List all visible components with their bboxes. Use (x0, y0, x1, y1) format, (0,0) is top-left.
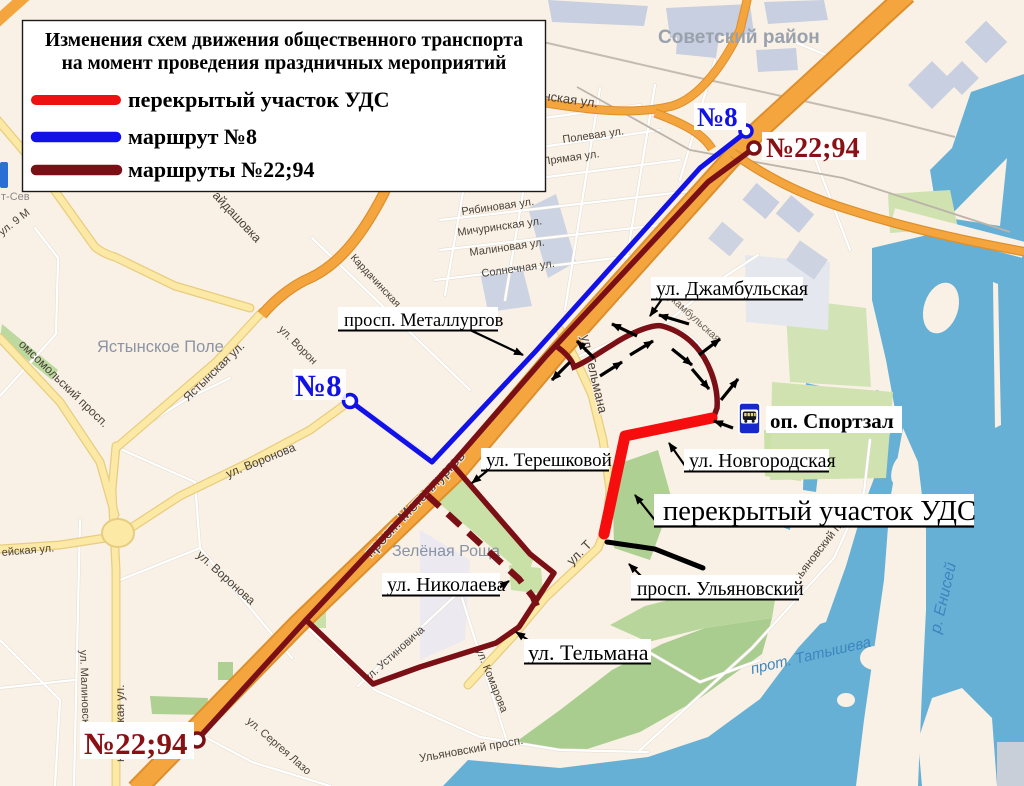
svg-text:перекрытый участок УДС: перекрытый участок УДС (663, 496, 976, 527)
svg-text:т-Сев: т-Сев (1, 191, 30, 203)
svg-text:Советский район: Советский район (658, 27, 820, 48)
svg-text:просп. Металлургов: просп. Металлургов (344, 311, 504, 331)
svg-text:ул. Джамбульская: ул. Джамбульская (656, 278, 808, 300)
svg-text:ул. Николаева: ул. Николаева (387, 574, 506, 596)
svg-text:№8: №8 (295, 368, 342, 403)
svg-text:ул. Новгородская: ул. Новгородская (689, 450, 836, 472)
svg-text:просп. Ульяновский: просп. Ульяновский (637, 579, 804, 600)
svg-text:Изменения схем движения общест: Изменения схем движения общественного тр… (45, 30, 523, 51)
svg-text:перекрытый участок УДС: перекрытый участок УДС (128, 87, 390, 112)
svg-text:№22;94: №22;94 (84, 726, 187, 761)
svg-text:маршруты №22;94: маршруты №22;94 (128, 157, 315, 182)
svg-text:ул. Тельмана: ул. Тельмана (528, 640, 649, 665)
svg-text:оп. Спортзал: оп. Спортзал (770, 409, 894, 433)
svg-text:маршрут №8: маршрут №8 (128, 124, 257, 149)
svg-text:ул. Терешковой: ул. Терешковой (486, 450, 612, 471)
svg-text:Ястынское Поле: Ястынское Поле (97, 338, 224, 356)
svg-text:№8: №8 (697, 102, 738, 132)
svg-text:№22;94: №22;94 (766, 133, 859, 164)
svg-text:Зелёная Роща: Зелёная Роща (392, 543, 500, 560)
svg-text:на момент проведения праздничн: на момент проведения праздничных меропри… (62, 53, 507, 74)
